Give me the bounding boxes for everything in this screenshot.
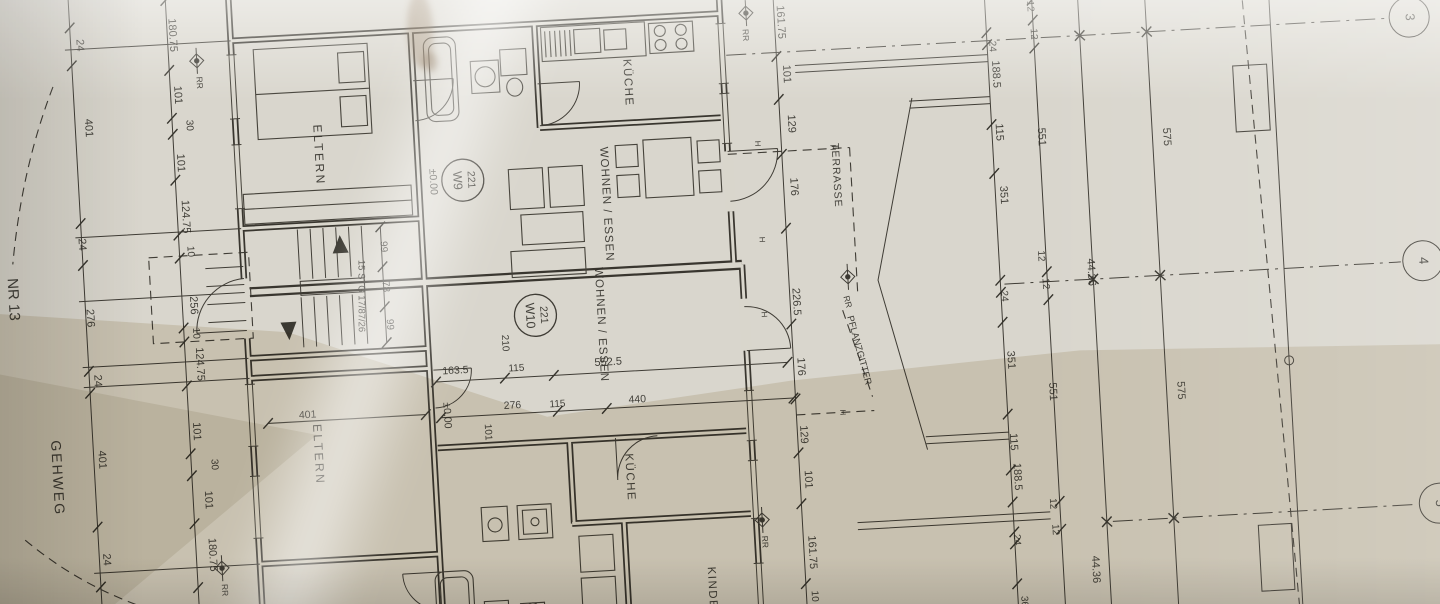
dim-site: 351 [997, 186, 1010, 205]
dim-left-inner: 10 [190, 327, 202, 339]
dim-left-inner: 101 [171, 85, 184, 104]
apartment-tag-w10: W10 [522, 302, 537, 328]
pflanzgitter-label: PFLANZGITTER [844, 314, 873, 386]
rr-label: RR [760, 535, 771, 548]
dim-site: 12 [1035, 250, 1047, 262]
dim-left-inner: 180.75 [205, 538, 219, 572]
dim-site: 551 [1046, 382, 1059, 401]
dim-left-outer: 401 [95, 450, 108, 469]
dim-left-inner: 256 [187, 296, 200, 315]
dim-site: 24 [986, 41, 998, 53]
grid-bubble-3-label: 3 [1403, 13, 1418, 21]
dim-left-inner: 124.75 [193, 347, 207, 381]
dim-left-inner: 101 [202, 490, 215, 509]
parcel-label: NR 13 [4, 278, 23, 321]
dim-left-outer: 24 [91, 374, 104, 387]
dim-stair: 99 [384, 319, 396, 331]
hinge-mark: H [828, 144, 837, 150]
dim-stair: 99 [377, 241, 389, 253]
room-label-kinder-w10: KINDER [705, 566, 720, 604]
dim-left-outer: 24 [100, 553, 113, 566]
dim-front: 176 [794, 357, 807, 376]
doors [184, 61, 805, 604]
dim-site: 188.5 [1011, 463, 1025, 491]
grid-bubble-4-label: 4 [1416, 257, 1431, 265]
dim-front: 10 [809, 590, 821, 602]
dim-left-outer: 401 [82, 118, 95, 137]
apartment-tag-w10-size: 221 [537, 306, 550, 324]
dim-site: 115 [993, 123, 1006, 141]
dim-front: 161.75 [805, 535, 819, 569]
rr-label: RR [220, 584, 231, 597]
rr-label: RR [194, 76, 205, 89]
hinge-mark: H [753, 141, 762, 147]
dim-site: 575 [1160, 127, 1173, 146]
dim-site: 551 [1035, 127, 1048, 146]
apartment-tag-w9: W9 [450, 171, 465, 191]
terrasse-label: TERRASSE [829, 143, 845, 208]
hinge-mark: H [838, 409, 847, 415]
dim-left-inner: 101 [174, 153, 187, 172]
dim-room: 401 [299, 408, 317, 421]
walls [228, 0, 763, 604]
street-label: GEHWEG [48, 440, 68, 517]
dim-room: 101 [482, 424, 494, 442]
dim-front: 101 [780, 64, 793, 83]
rr-label: RR [741, 29, 752, 42]
dim-room: 163.5 [442, 364, 469, 377]
dim-site: 12 [1047, 498, 1059, 510]
dim-site: 44.36 [1089, 555, 1103, 583]
dim-left-inner: 124.75 [179, 200, 193, 234]
level-mark-w10: ±0.00 [440, 402, 453, 429]
dim-site: 44.36 [1084, 258, 1098, 286]
dim-front: 129 [797, 425, 810, 444]
floorplan-photo: 24401242762440124180.7510130101124.75102… [0, 0, 1440, 604]
dim-front: 161.75 [774, 5, 788, 39]
dim-room: 115 [549, 398, 566, 410]
dim-front: 226.5 [789, 288, 803, 316]
dim-stair: 78 [380, 281, 392, 293]
dim-site: 12 [1028, 28, 1040, 40]
dim-site: 115 [1007, 433, 1020, 451]
dim-room: 115 [508, 363, 525, 375]
dim-site: 351 [1004, 350, 1017, 369]
terrace-dashed [725, 98, 931, 460]
dim-left-outer: 276 [84, 309, 97, 328]
dim-site: 24 [998, 290, 1010, 302]
dim-left-outer: 24 [76, 238, 89, 251]
dim-front: 129 [785, 114, 798, 133]
grid-bubble-5-label: 5 [1433, 499, 1440, 507]
level-mark-w9: ±0.00 [426, 168, 439, 195]
room-label-kueche-w10: KÜCHE [622, 453, 637, 501]
apartment-tag-w9-size: 221 [465, 171, 478, 189]
room-label-eltern-w9: ELTERN [310, 124, 327, 186]
dim-site: 12 [1049, 524, 1061, 536]
dim-room: 276 [503, 399, 521, 412]
dim-site: 36 [1018, 596, 1030, 604]
dim-left-inner: 101 [190, 422, 203, 441]
dim-site: 575 [1174, 381, 1187, 400]
dim-left-inner: 30 [183, 119, 195, 131]
plan-rotated-group: 24401242762440124180.7510130101124.75102… [0, 0, 1440, 604]
room-label-kueche-w9: KÜCHE [620, 59, 635, 107]
hinge-mark: H [760, 311, 769, 317]
floorplan-drawing: 24401242762440124180.7510130101124.75102… [0, 0, 1440, 604]
rr-label: RR [841, 294, 854, 308]
room-label-eltern-w10: ELTERN [310, 424, 327, 486]
dim-left-inner: 180.75 [165, 18, 179, 52]
dim-left-inner: 30 [208, 459, 220, 471]
dim-left-inner: 10 [184, 246, 196, 258]
dim-room: 210 [499, 334, 511, 352]
stair-note: 15 STG 17/87/26 [355, 260, 366, 332]
dim-site: 24 [1011, 534, 1023, 546]
dim-front: 176 [787, 177, 800, 196]
dim-left-outer: 24 [73, 39, 86, 52]
dim-site: 12 [1024, 0, 1036, 12]
hinge-mark: H [757, 236, 766, 242]
dim-site: 188.5 [989, 60, 1003, 88]
room-label-wohnen-w9: WOHNEN / ESSEN [597, 146, 615, 261]
dim-site: 12 [1040, 278, 1052, 290]
dim-room: 440 [628, 393, 646, 406]
dim-front: 101 [802, 470, 815, 489]
